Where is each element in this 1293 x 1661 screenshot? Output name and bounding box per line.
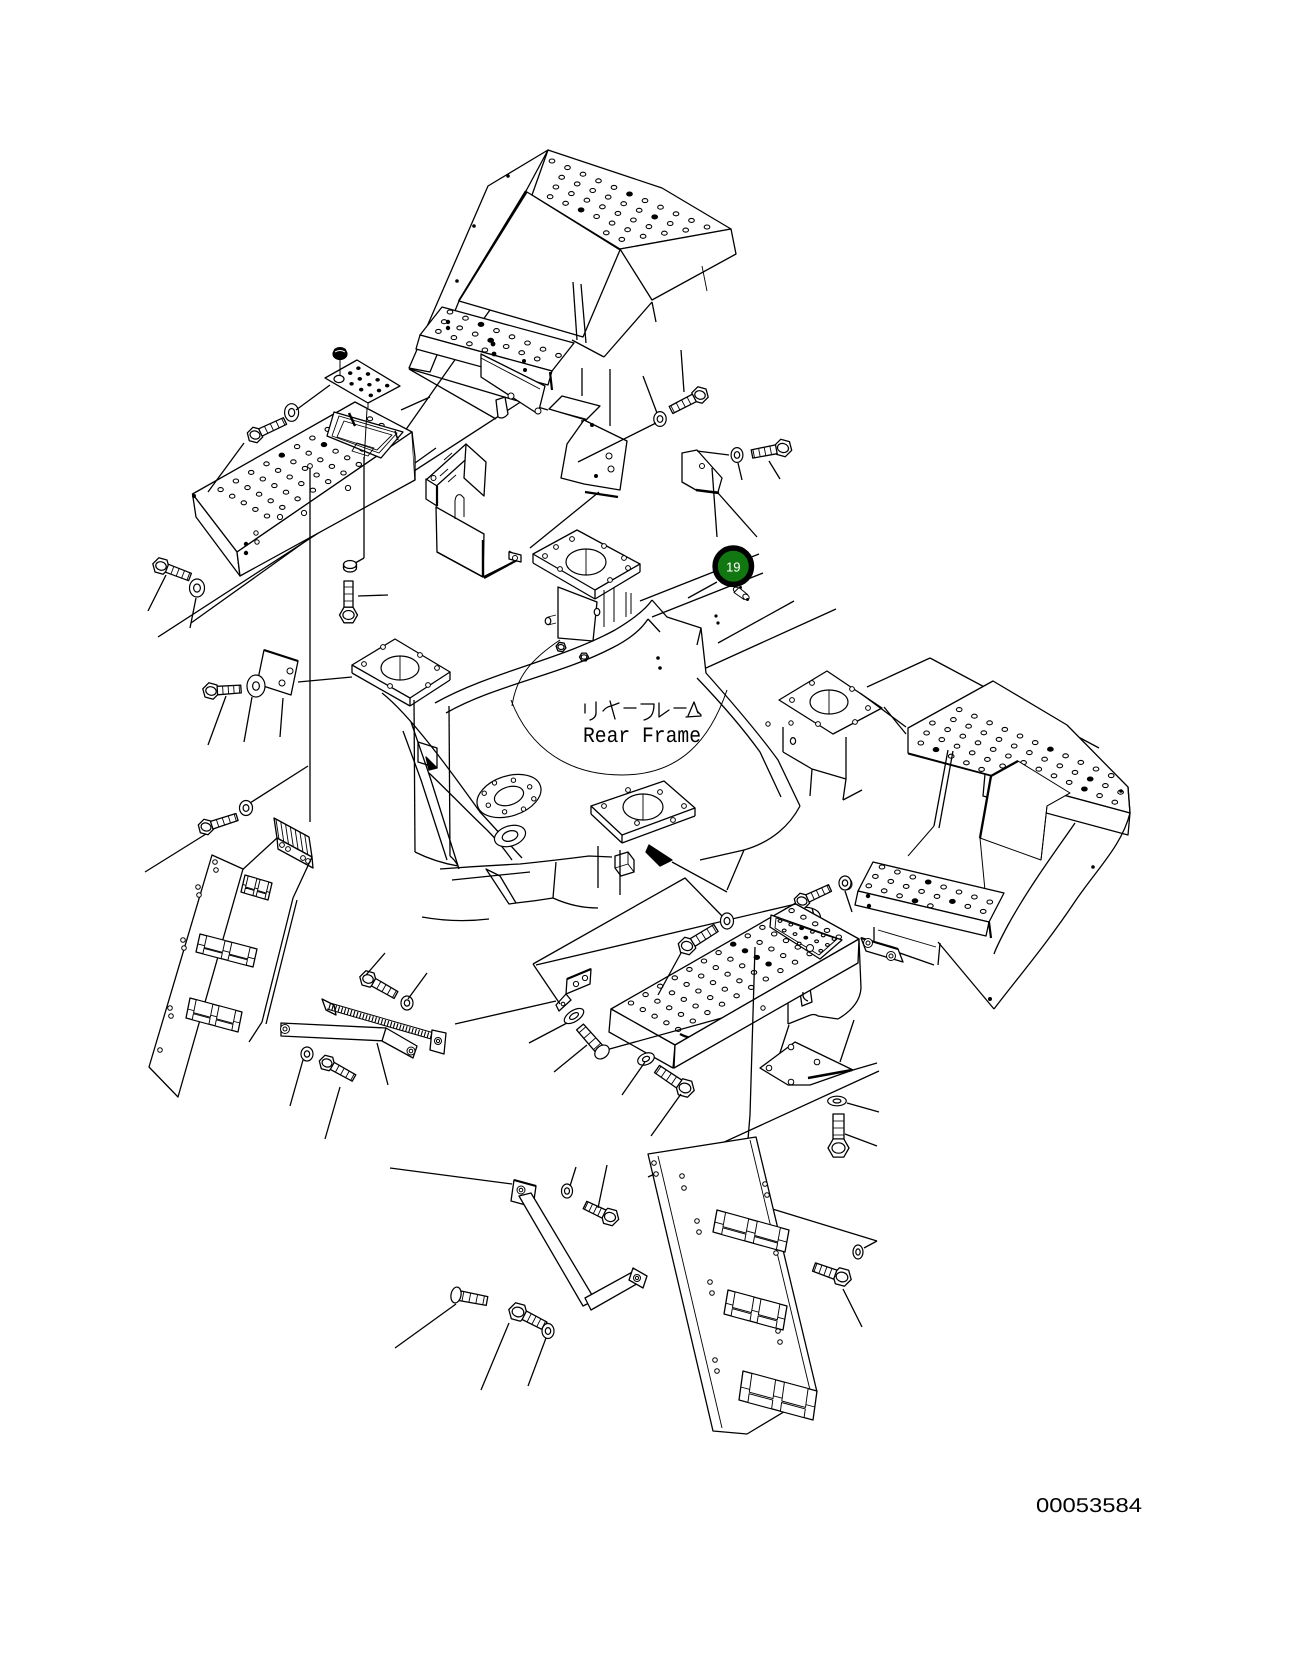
svg-text:Rear Frame: Rear Frame <box>583 724 701 749</box>
svg-text:19: 19 <box>726 560 740 575</box>
svg-text:00053584: 00053584 <box>1036 1495 1142 1517</box>
